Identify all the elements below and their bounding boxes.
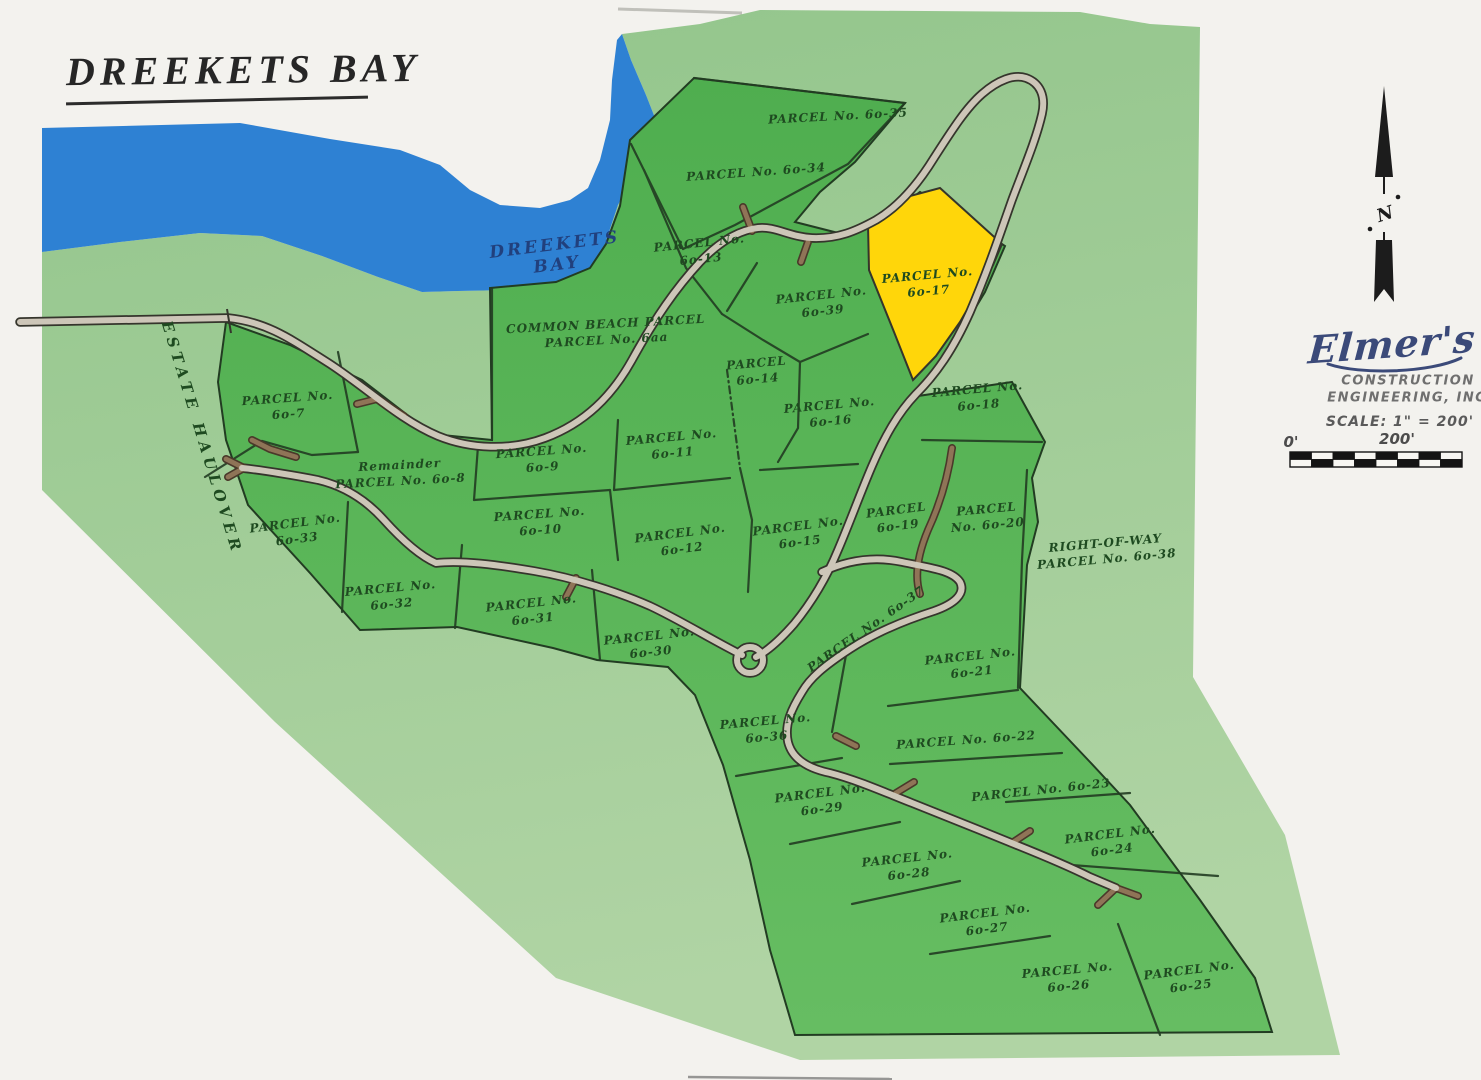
page-title: DREEKETS BAY: [66, 44, 421, 95]
firm-line1: CONSTRUCTION: [1341, 374, 1474, 389]
firm-line2: ENGINEERING, INC.: [1327, 391, 1481, 406]
scale-bar: [1290, 452, 1462, 467]
scan-streak-bottom: [688, 1077, 892, 1079]
scan-streak-top: [618, 9, 742, 13]
scalebar-right-label: 200': [1379, 430, 1415, 448]
north-arrow: N: [1368, 86, 1401, 302]
scale-note: SCALE: 1" = 200': [1326, 414, 1474, 430]
north-label: N: [1373, 201, 1398, 227]
plat-map-drawing: PARCEL No. 6o-35PARCEL No. 6o-34PARCEL N…: [0, 0, 1481, 1080]
scalebar-left-label: 0': [1283, 433, 1298, 451]
plat-map-page: PARCEL No. 6o-35PARCEL No. 6o-34PARCEL N…: [0, 0, 1481, 1080]
